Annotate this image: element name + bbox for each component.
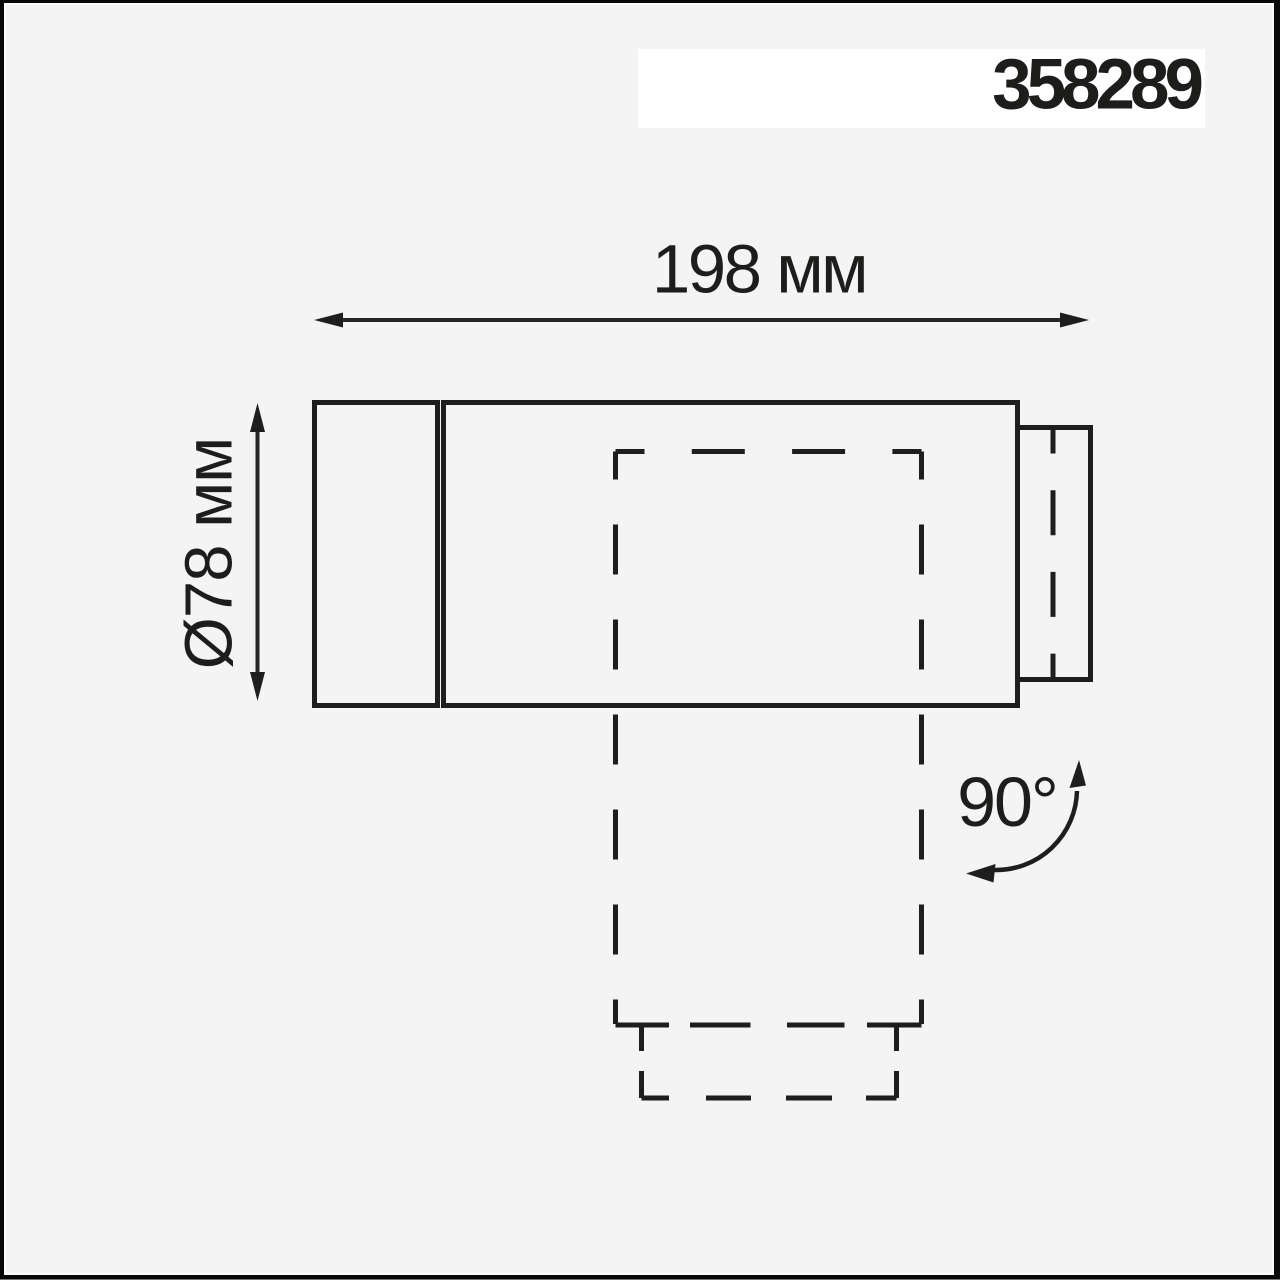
svg-text:198 мм: 198 мм [652, 231, 866, 308]
svg-text:358289: 358289 [992, 46, 1201, 125]
svg-text:Ø78 мм: Ø78 мм [172, 438, 247, 669]
svg-text:90°: 90° [957, 763, 1057, 841]
